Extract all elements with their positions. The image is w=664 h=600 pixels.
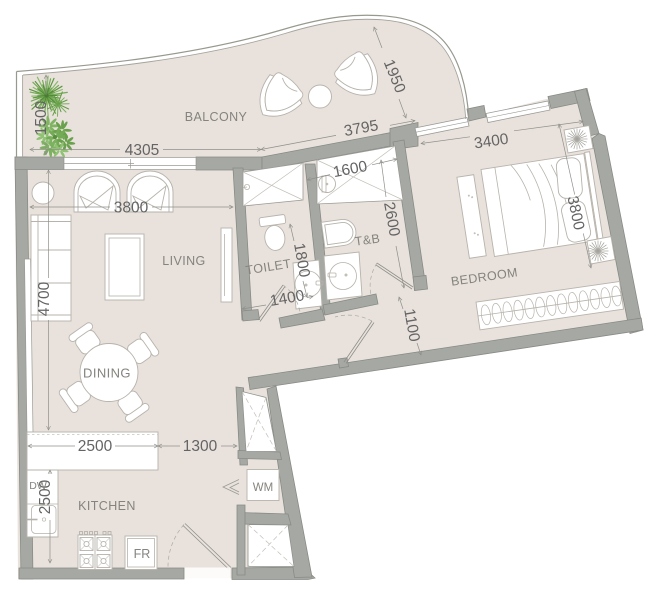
svg-text:4700: 4700: [36, 281, 53, 316]
svg-text:2500: 2500: [78, 438, 113, 455]
svg-text:4305: 4305: [125, 142, 159, 159]
svg-text:BALCONY: BALCONY: [185, 110, 248, 124]
svg-text:1300: 1300: [183, 438, 218, 455]
svg-text:LIVING: LIVING: [162, 254, 205, 268]
svg-text:3800: 3800: [114, 200, 149, 217]
svg-text:WM: WM: [253, 482, 273, 494]
svg-text:FR: FR: [134, 547, 151, 561]
svg-text:DW: DW: [29, 480, 47, 492]
svg-text:KITCHEN: KITCHEN: [78, 499, 136, 513]
svg-text:1500: 1500: [33, 100, 50, 135]
svg-text:DINING: DINING: [83, 366, 131, 381]
